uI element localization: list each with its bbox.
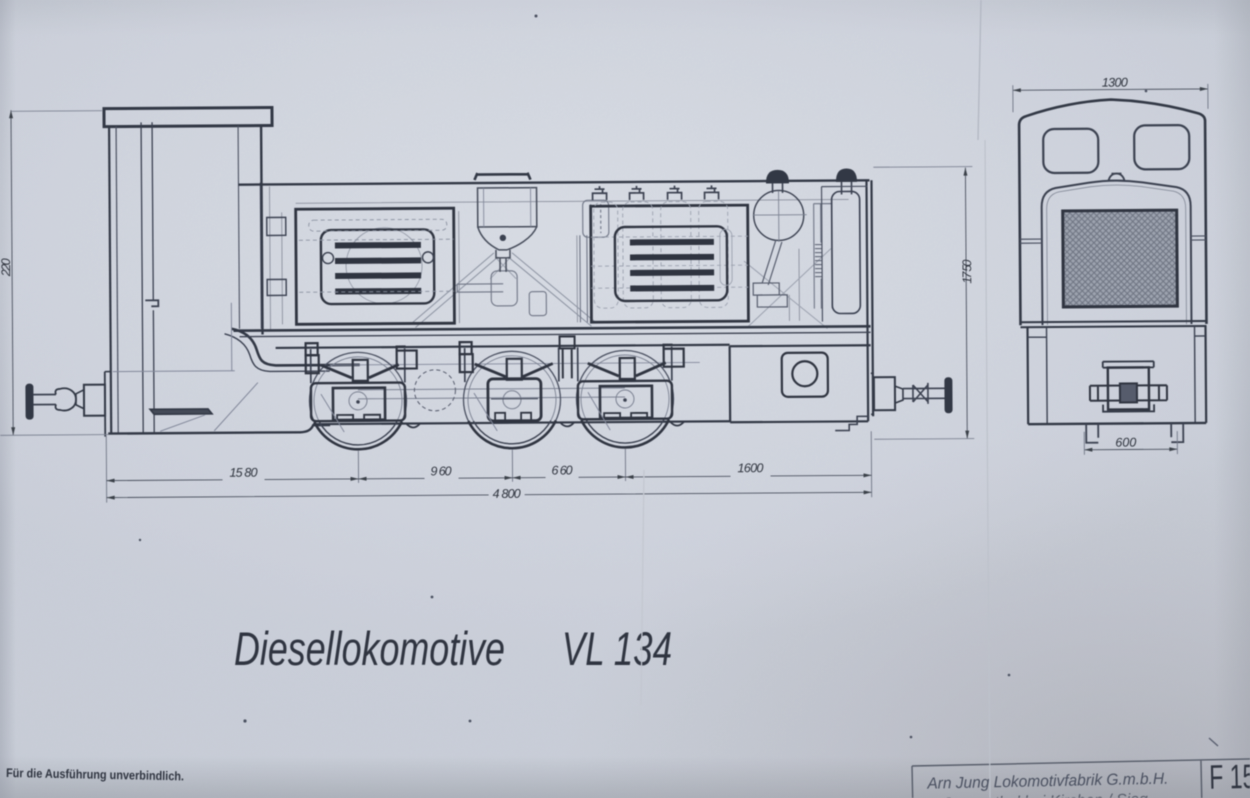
svg-text:F 15: F 15 <box>1209 758 1250 797</box>
svg-text:4 800: 4 800 <box>493 487 521 501</box>
svg-text:6 60: 6 60 <box>551 463 572 477</box>
svg-text:600: 600 <box>1115 435 1136 449</box>
svg-text:9 60: 9 60 <box>430 464 451 478</box>
svg-text:220: 220 <box>0 258 13 277</box>
svg-text:17 50: 17 50 <box>960 260 974 284</box>
svg-text:15 80: 15 80 <box>229 466 257 480</box>
svg-text:1600: 1600 <box>737 461 763 475</box>
svg-text:VL 134: VL 134 <box>562 622 672 675</box>
svg-text:Diesellokomotive: Diesellokomotive <box>234 622 505 675</box>
svg-text:1300: 1300 <box>1102 75 1128 89</box>
